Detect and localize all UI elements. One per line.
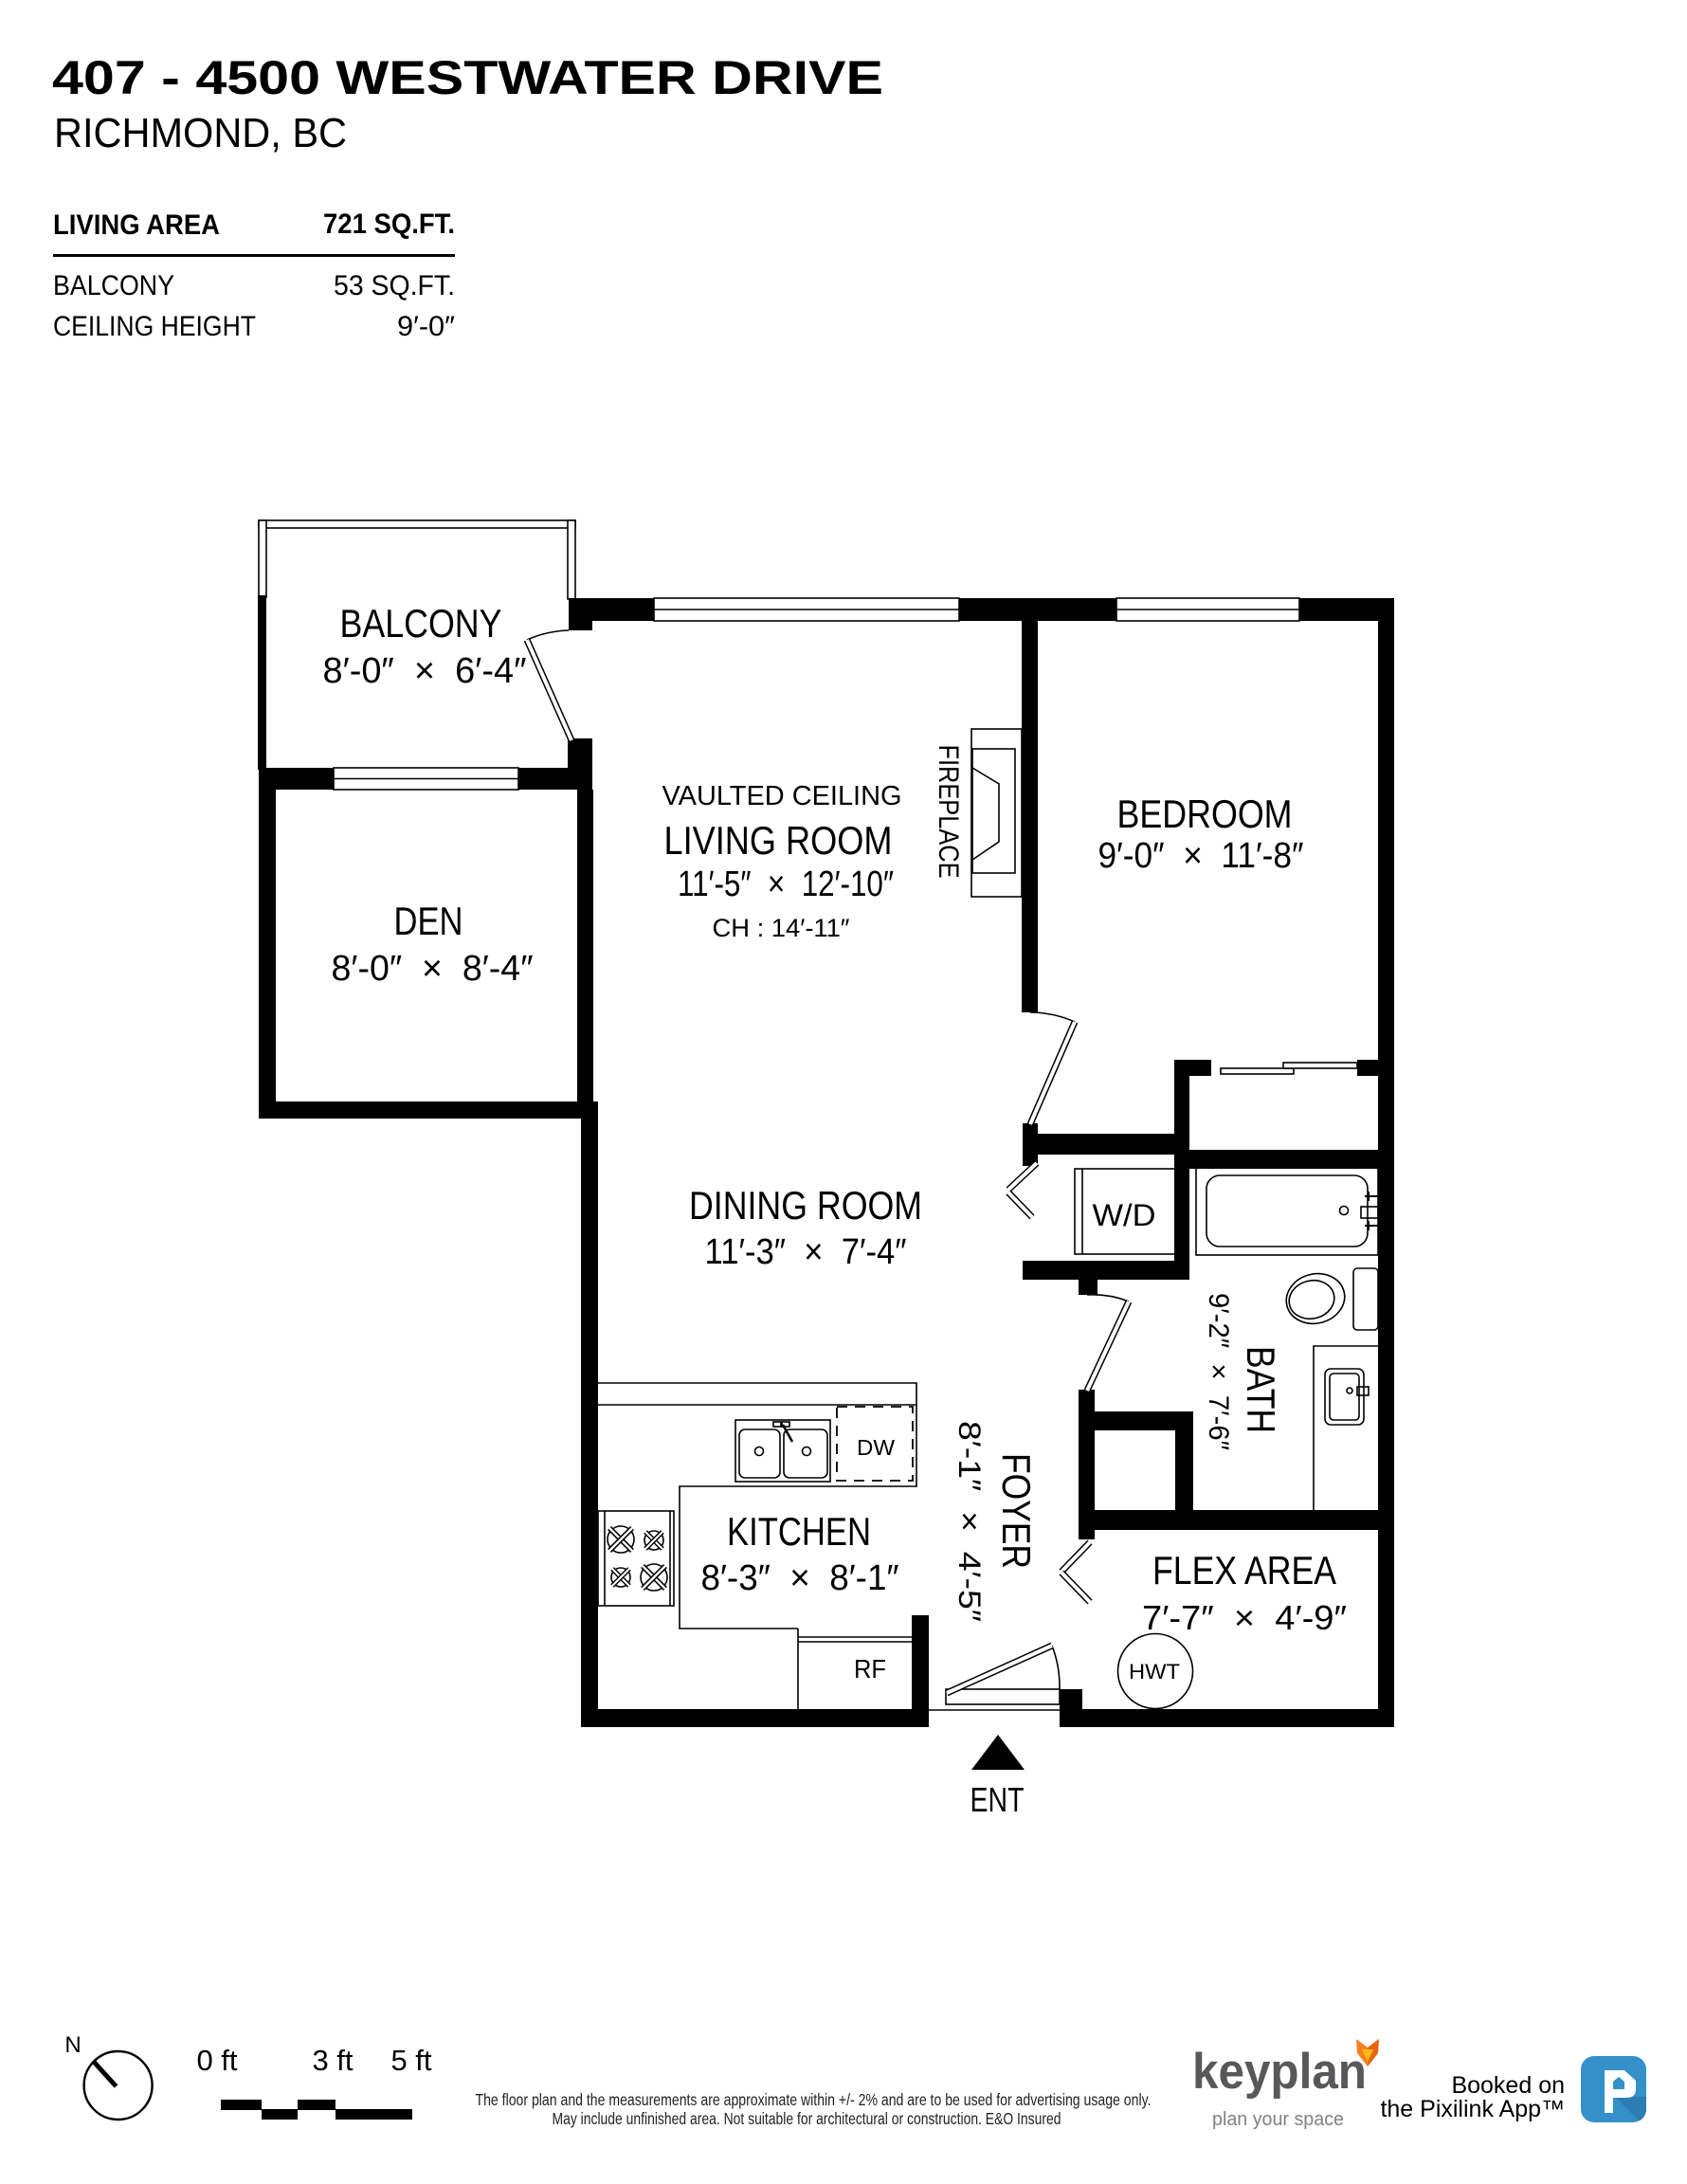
- svg-text:8′-3″ × 8′-1″: 8′-3″ × 8′-1″: [701, 1558, 899, 1598]
- svg-text:May include unfinished area. N: May include unfinished area. Not suitabl…: [553, 2109, 1061, 2128]
- svg-text:8′-1″ × 4′-5″: 8′-1″ × 4′-5″: [952, 1421, 987, 1622]
- svg-text:plan your space: plan your space: [1212, 2109, 1344, 2130]
- svg-text:BALCONY: BALCONY: [340, 601, 502, 646]
- svg-text:53 SQ.FT.: 53 SQ.FT.: [334, 270, 455, 301]
- svg-text:9′-2″ × 7′-6″: 9′-2″ × 7′-6″: [1203, 1293, 1234, 1450]
- svg-text:3 ft: 3 ft: [312, 2044, 353, 2077]
- svg-text:0 ft: 0 ft: [196, 2044, 237, 2077]
- svg-text:721 SQ.FT.: 721 SQ.FT.: [323, 209, 455, 240]
- svg-text:The floor plan and the measure: The floor plan and the measurements are …: [476, 2090, 1152, 2109]
- svg-text:HWT: HWT: [1129, 1660, 1180, 1683]
- svg-text:KITCHEN: KITCHEN: [727, 1509, 871, 1554]
- svg-text:8′-0″ × 8′-4″: 8′-0″ × 8′-4″: [332, 949, 534, 989]
- svg-text:FOYER: FOYER: [994, 1453, 1039, 1569]
- svg-text:11′-3″ × 7′-4″: 11′-3″ × 7′-4″: [705, 1232, 907, 1272]
- svg-text:BEDROOM: BEDROOM: [1117, 792, 1293, 836]
- svg-text:407 - 4500 WESTWATER DRIVE: 407 - 4500 WESTWATER DRIVE: [52, 51, 883, 104]
- svg-text:CH : 14′-11″: CH : 14′-11″: [713, 914, 850, 942]
- svg-text:FIREPLACE: FIREPLACE: [933, 745, 964, 879]
- svg-text:11′-5″ × 12′-10″: 11′-5″ × 12′-10″: [678, 864, 894, 904]
- svg-text:9′-0″: 9′-0″: [397, 311, 455, 342]
- svg-text:DW: DW: [857, 1435, 895, 1460]
- svg-text:7′-7″ × 4′-9″: 7′-7″ × 4′-9″: [1142, 1598, 1347, 1637]
- svg-text:9′-0″ × 11′-8″: 9′-0″ × 11′-8″: [1098, 836, 1304, 876]
- svg-text:FLEX AREA: FLEX AREA: [1152, 1548, 1336, 1592]
- svg-text:BALCONY: BALCONY: [53, 270, 174, 301]
- svg-text:ENT: ENT: [970, 1780, 1025, 1819]
- svg-text:5 ft: 5 ft: [390, 2044, 431, 2077]
- svg-text:LIVING AREA: LIVING AREA: [53, 209, 220, 241]
- svg-text:the Pixilink App™: the Pixilink App™: [1380, 2096, 1565, 2122]
- svg-text:BATH: BATH: [1239, 1346, 1283, 1433]
- svg-text:DINING ROOM: DINING ROOM: [689, 1183, 922, 1228]
- svg-text:VAULTED CEILING: VAULTED CEILING: [662, 781, 902, 811]
- svg-text:Booked on: Booked on: [1451, 2072, 1565, 2099]
- svg-text:DEN: DEN: [394, 899, 463, 943]
- svg-text:N: N: [64, 2032, 81, 2058]
- svg-text:8′-0″ × 6′-4″: 8′-0″ × 6′-4″: [323, 651, 527, 691]
- svg-text:LIVING ROOM: LIVING ROOM: [664, 818, 893, 863]
- svg-text:keyplan: keyplan: [1192, 2044, 1367, 2100]
- svg-text:CEILING HEIGHT: CEILING HEIGHT: [53, 311, 256, 342]
- svg-text:RICHMOND, BC: RICHMOND, BC: [54, 110, 347, 156]
- svg-text:RF: RF: [854, 1654, 886, 1683]
- svg-text:W/D: W/D: [1093, 1198, 1156, 1232]
